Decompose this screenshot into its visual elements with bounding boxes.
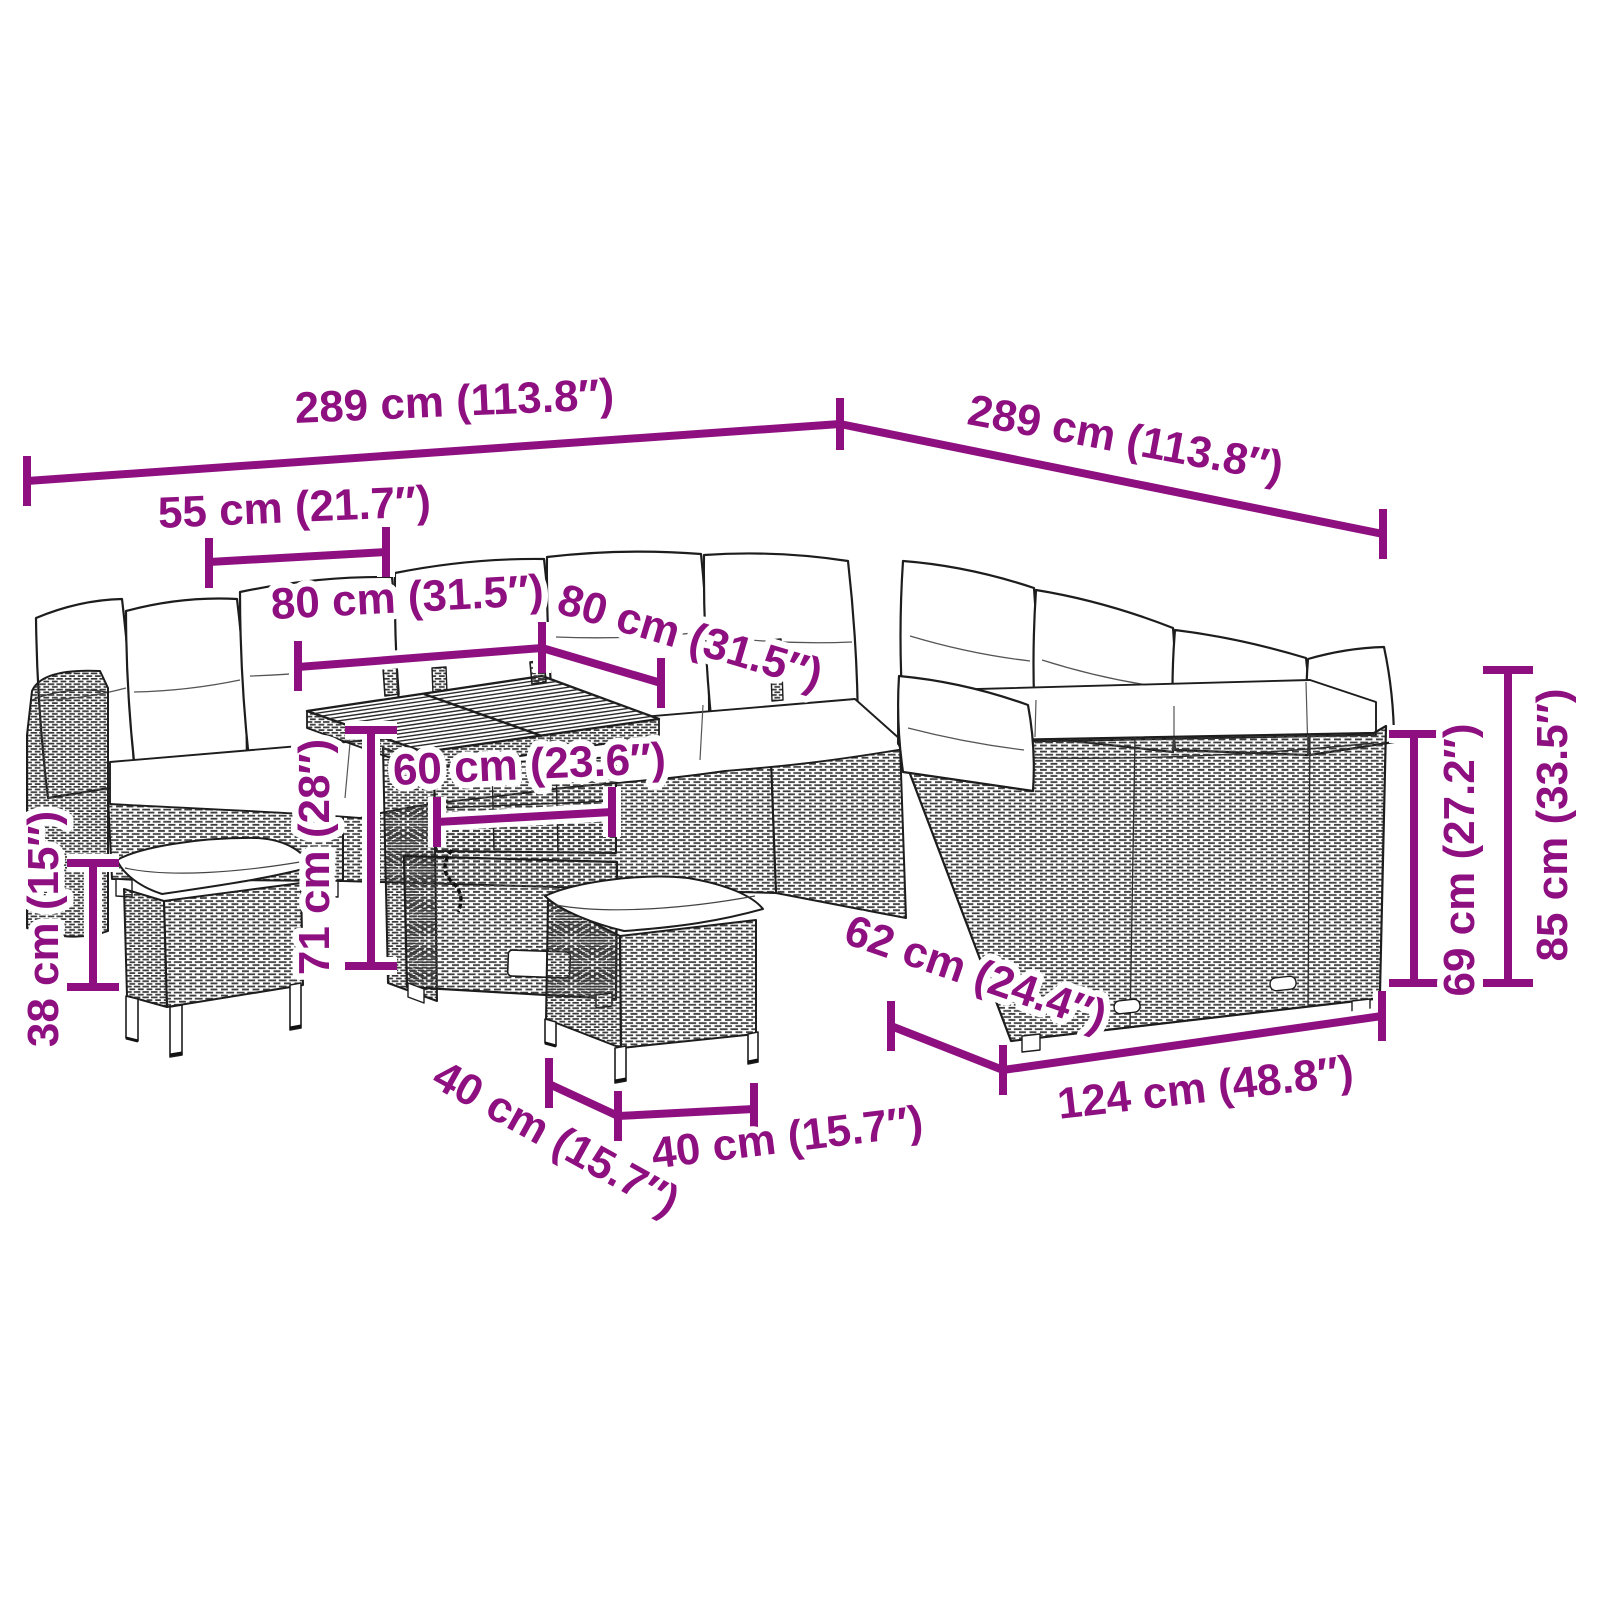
svg-text:69 cm (27.2″): 69 cm (27.2″) <box>1435 723 1484 996</box>
svg-text:38 cm (15″): 38 cm (15″) <box>19 811 68 1047</box>
svg-text:85 cm (33.5″): 85 cm (33.5″) <box>1528 688 1577 961</box>
svg-text:71 cm (28″): 71 cm (28″) <box>290 739 339 975</box>
